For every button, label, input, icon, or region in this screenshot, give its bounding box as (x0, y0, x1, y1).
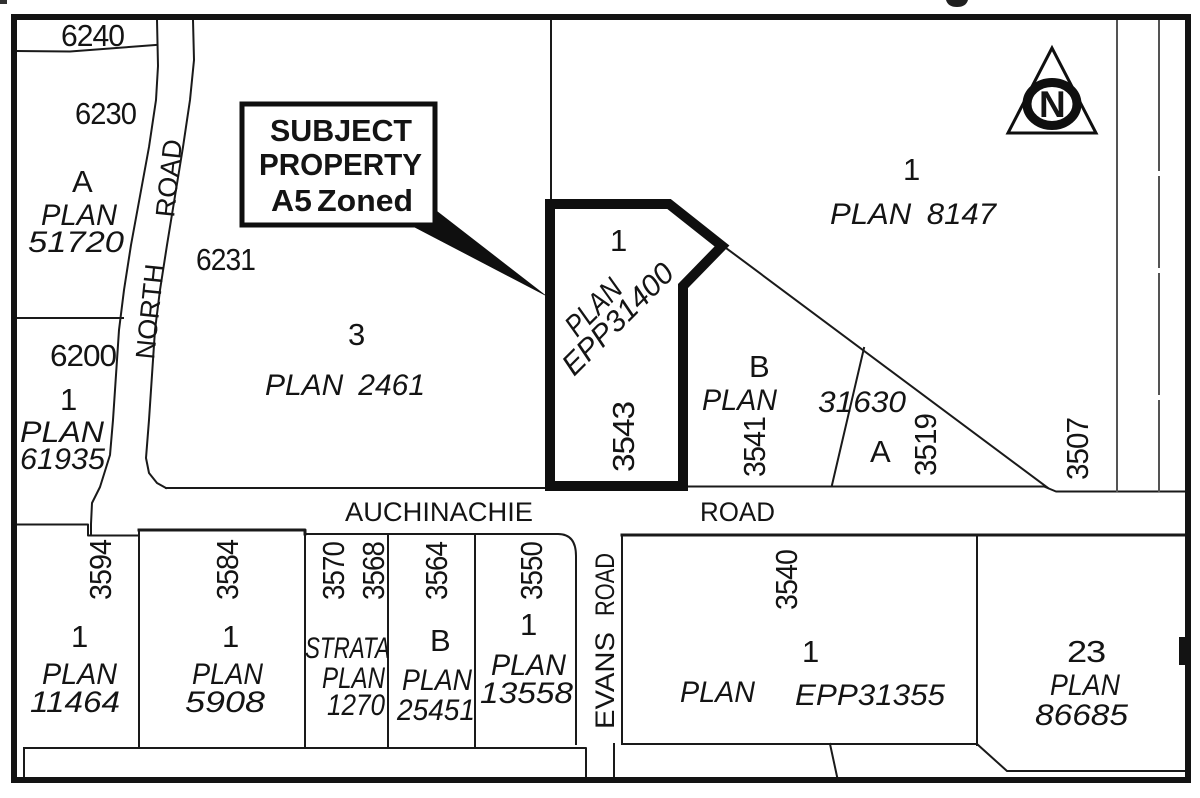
svg-text:61935: 61935 (20, 443, 105, 476)
svg-text:EPP31355: EPP31355 (795, 679, 945, 712)
svg-text:1: 1 (71, 619, 87, 654)
svg-text:3564: 3564 (419, 541, 454, 600)
svg-text:1: 1 (802, 634, 818, 669)
svg-text:1: 1 (60, 382, 76, 417)
svg-text:1: 1 (903, 152, 919, 187)
svg-text:N: N (1039, 84, 1066, 125)
svg-text:1: 1 (222, 619, 238, 654)
svg-text:23: 23 (1067, 634, 1105, 669)
svg-text:25451: 25451 (396, 694, 475, 727)
svg-text:3570: 3570 (316, 541, 351, 600)
svg-text:3519: 3519 (908, 414, 943, 476)
svg-text:ROAD: ROAD (590, 553, 620, 616)
svg-text:STRATA: STRATA (305, 632, 390, 665)
svg-text:A5 Zoned: A5 Zoned (271, 183, 413, 218)
svg-text:EVANS: EVANS (590, 632, 620, 729)
svg-text:AUCHINACHIE: AUCHINACHIE (345, 497, 533, 527)
svg-text:PLAN: PLAN (1050, 669, 1120, 702)
svg-text:3507: 3507 (1060, 418, 1095, 480)
svg-text:86685: 86685 (1035, 699, 1128, 732)
svg-text:1: 1 (520, 607, 536, 642)
svg-text:13558: 13558 (480, 677, 573, 710)
svg-text:6231: 6231 (196, 242, 255, 277)
svg-text:6200: 6200 (50, 338, 117, 373)
svg-text:A: A (870, 434, 891, 469)
svg-text:6230: 6230 (75, 96, 137, 131)
svg-text:3541: 3541 (737, 417, 772, 477)
svg-text:PROPERTY: PROPERTY (259, 147, 422, 182)
svg-text:SUBJECT: SUBJECT (270, 113, 412, 148)
svg-text:PLAN: PLAN (680, 676, 755, 709)
svg-text:31630: 31630 (818, 386, 906, 419)
svg-text:3584: 3584 (210, 539, 245, 600)
svg-text:3: 3 (348, 317, 364, 352)
svg-text:B: B (749, 349, 769, 384)
svg-text:5908: 5908 (185, 686, 265, 719)
svg-text:PLAN: PLAN (702, 384, 777, 417)
svg-text:1270: 1270 (327, 689, 385, 722)
svg-text:PLAN 8147: PLAN 8147 (830, 198, 997, 231)
svg-text:ROAD: ROAD (700, 497, 775, 527)
svg-text:PLAN: PLAN (402, 664, 472, 697)
svg-text:11464: 11464 (30, 686, 120, 719)
svg-text:3540: 3540 (769, 549, 804, 610)
svg-text:51720: 51720 (28, 226, 124, 259)
svg-text:1: 1 (610, 223, 626, 258)
svg-text:PLAN 2461: PLAN 2461 (265, 369, 425, 402)
svg-text:3550: 3550 (514, 541, 549, 600)
svg-text:3594: 3594 (83, 539, 118, 600)
svg-text:3543: 3543 (606, 402, 641, 472)
svg-text:B: B (430, 623, 450, 658)
svg-text:A: A (72, 164, 93, 199)
svg-text:3568: 3568 (356, 542, 391, 600)
svg-text:6240: 6240 (61, 18, 125, 53)
